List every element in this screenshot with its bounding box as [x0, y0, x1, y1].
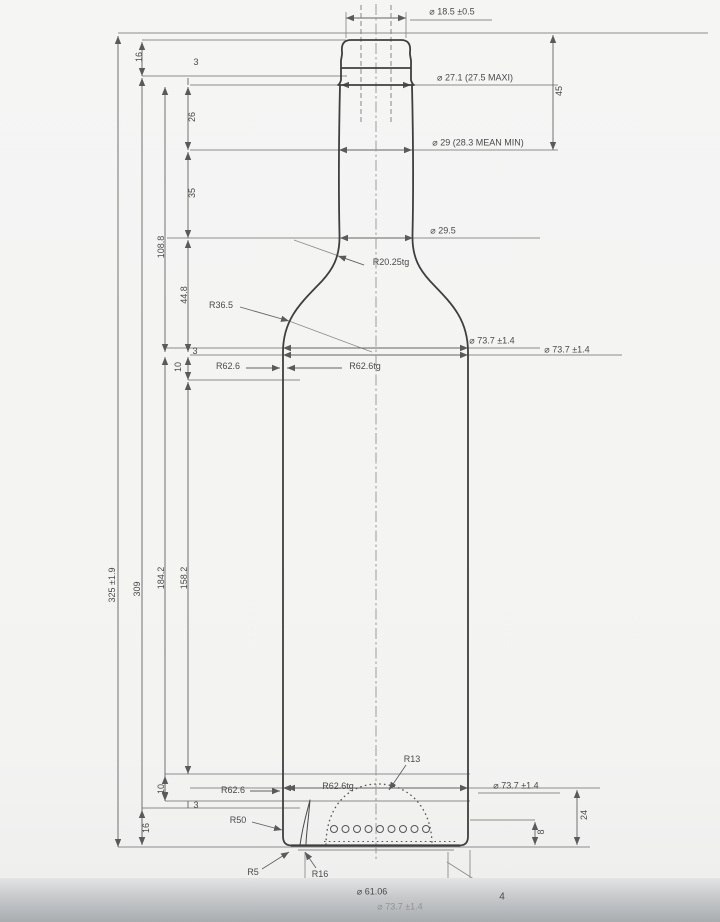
radius-shoulder-flank: R62.6 [216, 361, 240, 371]
height-neck-mid: 35 [187, 188, 197, 198]
height-heel-step: 3 [193, 800, 198, 810]
bottom-gray-band [0, 878, 720, 922]
dim-body-od-lower: ⌀ 73.7 ±1.4 [493, 781, 538, 792]
dim-finish-od: ⌀ 27.1 (27.5 MAXI) [437, 73, 513, 84]
dim-body-od: ⌀ 73.7 ±1.4 [469, 336, 514, 347]
radius-heel-outer: R5 [247, 867, 259, 877]
dim-bore-diameter: ⌀ 18.5 ±0.5 [429, 7, 474, 18]
height-heel-offset: 10 [156, 784, 166, 794]
punt-dome-dotted [324, 784, 458, 845]
dim-body-od-faint: ⌀ 73.7 ±1.4 [377, 902, 422, 913]
dim-neck-lower-od: ⌀ 29.5 [430, 226, 455, 237]
stipple-dots [331, 826, 430, 833]
bottle-drawing [0, 0, 720, 922]
height-section-lower: 158.2 [179, 567, 189, 590]
radius-heel-flank: R62.6 [221, 785, 245, 795]
dim-body-od-alt: ⌀ 73.7 ±1.4 [544, 345, 589, 356]
bottle-outline [283, 40, 468, 846]
radius-heel-tangent: R62.6tg [322, 781, 354, 791]
radius-shoulder: R36.5 [209, 300, 233, 310]
centerline [361, 4, 391, 860]
height-stipple: 8 [536, 829, 546, 834]
radius-heel-inner: R50 [230, 815, 247, 825]
height-body: 309 [132, 581, 142, 596]
height-overall: 325 ±1.9 [107, 568, 117, 603]
height-neck-total: 108.8 [156, 236, 166, 259]
dim-base-bearing-od: ⌀ 61.06 [357, 887, 387, 898]
height-finish: 16 [134, 52, 144, 62]
height-shoulder-step: 3 [192, 346, 197, 356]
radius-punt-dome: R13 [404, 754, 421, 764]
balloon-number: 4 [499, 892, 505, 903]
height-heel-band: 16 [141, 823, 151, 833]
height-undercut: 3 [193, 57, 198, 67]
radius-shoulder-tangent: R62.6tg [349, 361, 381, 371]
radius-neck-taper: R20.25tg [373, 257, 410, 267]
height-shoulder-offset: 10 [173, 362, 183, 372]
height-neck-upper: 26 [187, 112, 197, 122]
technical-drawing-canvas: ⌀ 18.5 ±0.5 ⌀ 27.1 (27.5 MAXI) ⌀ 29 (28.… [0, 0, 720, 922]
height-shoulder: 44.8 [179, 286, 189, 304]
dim-neck-upper-od: ⌀ 29 (28.3 MEAN MIN) [432, 138, 523, 149]
radius-punt-base: R16 [312, 869, 329, 879]
height-punt: 24 [579, 810, 589, 820]
height-finish-to-neck: 45 [554, 86, 564, 96]
height-section-upper: 184.2 [156, 567, 166, 590]
